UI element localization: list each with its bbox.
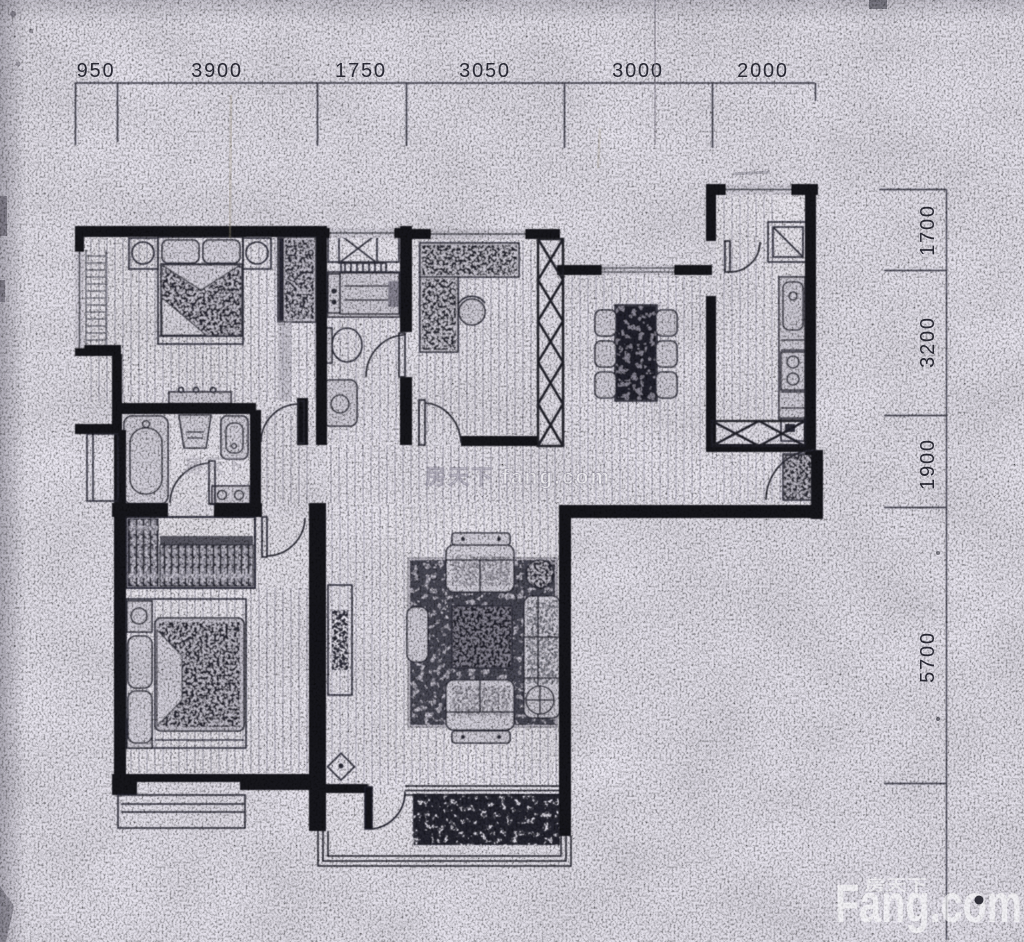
svg-text:房天下 fang.com: 房天下 fang.com — [425, 465, 611, 489]
svg-text:房天下: 房天下 — [185, 455, 245, 476]
svg-text:Fang.com: Fang.com — [835, 874, 1022, 934]
